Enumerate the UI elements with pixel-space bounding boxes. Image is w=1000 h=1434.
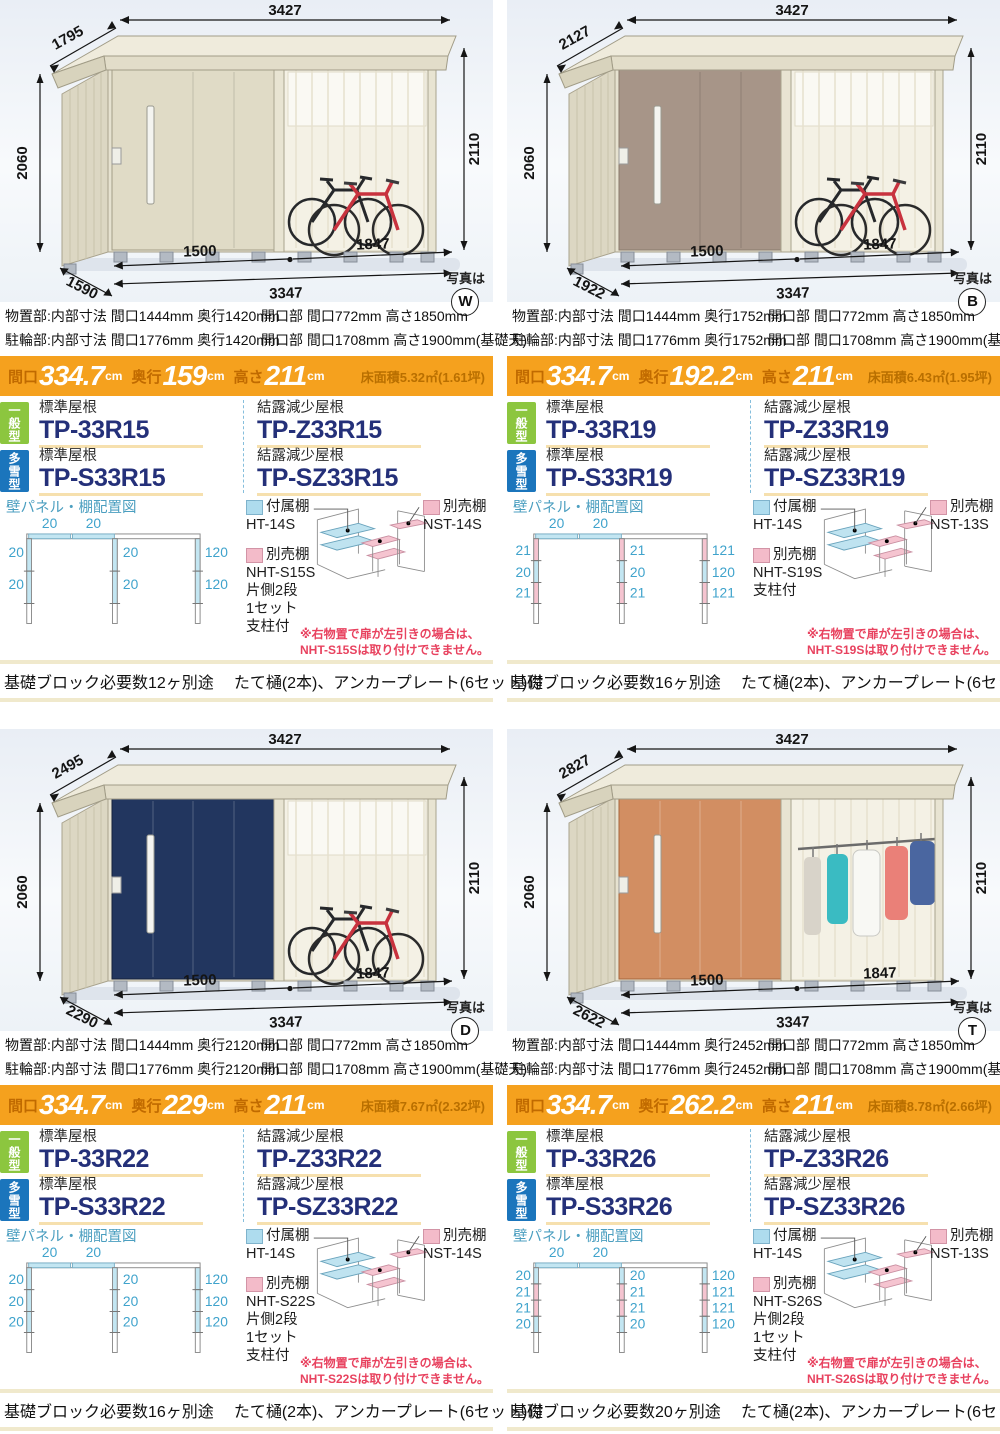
svg-text:120: 120 xyxy=(205,1315,228,1330)
dim-width: 3427 xyxy=(775,2,808,19)
shelf-legend-left: 付属棚 HT-14S 別売棚 NHT-S15S 片側2段 1セット 支柱付 xyxy=(246,498,316,636)
model-code: TP-S33R26 xyxy=(546,1194,710,1225)
dimension-banner: 間口334.7cm 奥行159cm 高さ211cm 床面積5.32㎡(1.61坪… xyxy=(0,356,493,396)
dim-height-right: 2110 xyxy=(973,133,990,166)
svg-text:121: 121 xyxy=(712,543,735,558)
svg-text:20: 20 xyxy=(549,516,565,531)
svg-text:20: 20 xyxy=(9,577,25,592)
svg-text:20: 20 xyxy=(516,1268,532,1283)
svg-text:20: 20 xyxy=(630,1317,646,1332)
optional-shelf-swatch-icon xyxy=(930,1229,947,1244)
included-shelf-swatch-icon xyxy=(753,500,770,515)
model-code: TP-S33R22 xyxy=(39,1194,203,1225)
shelf-layout-section: 壁パネル・棚配置図 20 20 20 20 20 20 xyxy=(0,496,493,658)
model-code: TP-33R22 xyxy=(39,1146,203,1177)
dim-height-right: 2110 xyxy=(973,862,990,895)
dim-height-right: 2110 xyxy=(466,862,483,895)
dim-depth-bottom: 1922 xyxy=(570,273,607,302)
svg-text:20: 20 xyxy=(9,545,25,560)
dim-width: 3427 xyxy=(268,731,301,748)
dim-width: 3427 xyxy=(775,731,808,748)
general-type-badge: 一般型 xyxy=(507,1131,536,1173)
floor-area: 床面積8.78㎡(2.66坪) xyxy=(868,1096,992,1115)
dim-door-width: 1500 xyxy=(690,971,724,989)
general-type-badge: 一般型 xyxy=(0,1131,29,1173)
dim-door-width: 1500 xyxy=(690,242,724,260)
floor-area: 床面積6.43㎡(1.95坪) xyxy=(868,367,992,386)
optional-shelf-swatch-icon xyxy=(246,1277,263,1292)
dim-width: 3427 xyxy=(268,2,301,19)
product-panel-tp33r15: 3427 1795 2060 2110 1500 1847 3347 1590 … xyxy=(0,0,493,705)
optional-shelf-model: NHT-S26S xyxy=(753,1293,823,1311)
dim-bay-width: 1847 xyxy=(356,235,390,253)
optional-shelf-model: NHT-S22S xyxy=(246,1293,316,1311)
model-numbers: 一般型 標準屋根TP-33R26 結露減少屋根TP-Z33R26 多雪型 標準屋… xyxy=(507,1129,1000,1225)
optional-shelf-swatch-icon xyxy=(423,1229,440,1244)
svg-text:121: 121 xyxy=(712,586,735,601)
dimension-banner: 間口334.7cm 奥行262.2cm 高さ211cm 床面積8.78㎡(2.6… xyxy=(507,1085,1000,1125)
installation-warning: ※右物置で扉が左引きの場合は、 NHT-S26Sは取り付けできません。 xyxy=(807,1355,999,1387)
product-panel-tp33r22: 3427 2495 2060 2110 1500 1847 3347 2290 … xyxy=(0,729,493,1434)
catalog-page: 3427 1795 2060 2110 1500 1847 3347 1590 … xyxy=(0,0,1000,1434)
svg-text:20: 20 xyxy=(86,1245,102,1260)
svg-text:20: 20 xyxy=(630,1268,646,1283)
spec-text: 物置部:内部寸法 間口1444mm 奥行2452mm開口部 間口772mm 高さ… xyxy=(512,1033,998,1081)
model-numbers: 一般型 標準屋根TP-33R15 結露減少屋根TP-Z33R15 多雪型 標準屋… xyxy=(0,400,493,496)
svg-text:20: 20 xyxy=(123,1294,139,1309)
model-code: TP-Z33R15 xyxy=(257,417,421,448)
shed-drawing: 3427 2127 2060 2110 1500 1847 3347 1922 xyxy=(507,0,1000,302)
shelf-legend-right: 別売棚 NST-13S xyxy=(930,1227,999,1263)
foundation-note: 基礎ブロック必要数12ヶ別途 たて樋(2本)、アンカープレート(6セット)付 xyxy=(0,660,493,702)
model-code: TP-SZ33R15 xyxy=(257,465,421,496)
svg-text:120: 120 xyxy=(712,565,735,580)
optional-right-shelf-model: NST-13S xyxy=(930,516,999,534)
wall-panel-diagram: 20 20 20 20 20 20 20 20 120 120 120 xyxy=(2,1242,242,1362)
floor-area: 床面積5.32㎡(1.61坪) xyxy=(361,367,485,386)
shed-illustration-area: 3427 2127 2060 2110 1500 1847 3347 1922 … xyxy=(507,0,1000,302)
optional-right-shelf-model: NST-14S xyxy=(423,516,492,534)
svg-text:20: 20 xyxy=(9,1272,25,1287)
model-code: TP-Z33R19 xyxy=(764,417,928,448)
shed-drawing: 3427 2827 2060 2110 1500 1847 3347 2622 xyxy=(507,729,1000,1031)
included-shelf-swatch-icon xyxy=(753,1229,770,1244)
svg-text:21: 21 xyxy=(630,1300,645,1315)
shed-illustration-area: 3427 2495 2060 2110 1500 1847 3347 2290 … xyxy=(0,729,493,1031)
dim-height-left: 2060 xyxy=(521,875,538,908)
svg-text:20: 20 xyxy=(630,565,646,580)
dim-bay-width: 1847 xyxy=(863,964,897,982)
dim-depth-bottom: 2290 xyxy=(63,1002,100,1031)
shelf-legend-right: 別売棚 NST-14S xyxy=(423,498,492,534)
svg-text:121: 121 xyxy=(712,1300,735,1315)
svg-text:20: 20 xyxy=(9,1294,25,1309)
foundation-note: 基礎ブロック必要数16ヶ別途 たて樋(2本)、アンカープレート(6セット)付 xyxy=(507,660,1000,702)
optional-shelf-swatch-icon xyxy=(753,548,770,563)
model-code: TP-SZ33R22 xyxy=(257,1194,421,1225)
dim-height-left: 2060 xyxy=(521,146,538,179)
included-shelf-swatch-icon xyxy=(246,1229,263,1244)
svg-text:20: 20 xyxy=(9,1315,25,1330)
dim-depth-bottom: 1590 xyxy=(63,273,100,302)
svg-text:20: 20 xyxy=(549,1245,565,1260)
general-type-badge: 一般型 xyxy=(0,402,29,444)
model-numbers: 一般型 標準屋根TP-33R22 結露減少屋根TP-Z33R22 多雪型 標準屋… xyxy=(0,1129,493,1225)
optional-shelf-model: NHT-S19S xyxy=(753,564,823,582)
snow-type-badge: 多雪型 xyxy=(0,1179,29,1221)
svg-text:20: 20 xyxy=(516,565,532,580)
shelf-arrangement-sketch xyxy=(312,1229,428,1331)
shelf-arrangement-sketch xyxy=(819,1229,935,1331)
general-type-badge: 一般型 xyxy=(507,402,536,444)
svg-text:21: 21 xyxy=(516,543,531,558)
dim-height-right: 2110 xyxy=(466,133,483,166)
foundation-note: 基礎ブロック必要数20ヶ別途 たて樋(2本)、アンカープレート(6セット)付 xyxy=(507,1389,1000,1431)
optional-shelf-swatch-icon xyxy=(753,1277,770,1292)
svg-text:120: 120 xyxy=(205,1272,228,1287)
installation-warning: ※右物置で扉が左引きの場合は、 NHT-S19Sは取り付けできません。 xyxy=(807,626,999,658)
installation-warning: ※右物置で扉が左引きの場合は、 NHT-S22Sは取り付けできません。 xyxy=(300,1355,492,1387)
included-shelf-swatch-icon xyxy=(246,500,263,515)
model-code: TP-33R26 xyxy=(546,1146,710,1177)
shed-illustration-area: 3427 2827 2060 2110 1500 1847 3347 2622 … xyxy=(507,729,1000,1031)
dim-bay-width: 1847 xyxy=(863,235,897,253)
svg-text:120: 120 xyxy=(205,545,228,560)
svg-text:21: 21 xyxy=(630,543,645,558)
svg-text:20: 20 xyxy=(123,577,139,592)
dim-depth-top: 2495 xyxy=(49,752,86,783)
product-panel-tp33r19: 3427 2127 2060 2110 1500 1847 3347 1922 … xyxy=(507,0,1000,705)
svg-text:20: 20 xyxy=(123,1315,139,1330)
model-code: TP-SZ33R26 xyxy=(764,1194,928,1225)
model-code: TP-Z33R22 xyxy=(257,1146,421,1177)
dim-height-left: 2060 xyxy=(14,875,31,908)
included-shelf-model: HT-14S xyxy=(753,1245,823,1263)
bike-spec: 駐輪部:内部寸法 間口1776mm 奥行1420mm xyxy=(5,328,261,352)
shelf-legend-left: 付属棚 HT-14S 別売棚 NHT-S19S 支柱付 xyxy=(753,498,823,600)
snow-type-badge: 多雪型 xyxy=(507,450,536,492)
shelf-legend-left: 付属棚 HT-14S 別売棚 NHT-S26S 片側2段 1セット 支柱付 xyxy=(753,1227,823,1365)
svg-text:21: 21 xyxy=(630,586,645,601)
shed-drawing: 3427 1795 2060 2110 1500 1847 3347 1590 xyxy=(0,0,493,302)
svg-text:120: 120 xyxy=(712,1317,735,1332)
dim-total-width: 3347 xyxy=(269,284,303,302)
svg-text:121: 121 xyxy=(712,1284,735,1299)
shelf-legend-right: 別売棚 NST-13S xyxy=(930,498,999,534)
included-shelf-model: HT-14S xyxy=(246,1245,316,1263)
optional-right-shelf-model: NST-14S xyxy=(423,1245,492,1263)
model-code: TP-33R19 xyxy=(546,417,710,448)
model-code: TP-S33R19 xyxy=(546,465,710,496)
svg-text:120: 120 xyxy=(712,1268,735,1283)
snow-type-badge: 多雪型 xyxy=(0,450,29,492)
wall-panel-diagram: 20 20 20 21 21 20 20 21 21 20 120 121 12… xyxy=(509,1242,749,1362)
foundation-note: 基礎ブロック必要数16ヶ別途 たて樋(2本)、アンカープレート(6セット)付 xyxy=(0,1389,493,1431)
svg-text:120: 120 xyxy=(205,1294,228,1309)
svg-text:20: 20 xyxy=(516,1317,532,1332)
dimension-banner: 間口334.7cm 奥行229cm 高さ211cm 床面積7.67㎡(2.32坪… xyxy=(0,1085,493,1125)
svg-text:20: 20 xyxy=(123,1272,139,1287)
dim-total-width: 3347 xyxy=(776,284,810,302)
installation-warning: ※右物置で扉が左引きの場合は、 NHT-S15Sは取り付けできません。 xyxy=(300,626,492,658)
dim-depth-top: 2127 xyxy=(556,23,593,54)
model-code: TP-SZ33R19 xyxy=(764,465,928,496)
spec-text: 物置部:内部寸法 間口1444mm 奥行1420mm開口部 間口772mm 高さ… xyxy=(5,304,491,352)
dim-total-width: 3347 xyxy=(776,1013,810,1031)
svg-text:21: 21 xyxy=(516,1300,531,1315)
dimension-banner: 間口334.7cm 奥行192.2cm 高さ211cm 床面積6.43㎡(1.9… xyxy=(507,356,1000,396)
shelf-arrangement-sketch xyxy=(312,500,428,602)
optional-shelf-swatch-icon xyxy=(246,548,263,563)
dim-depth-top: 2827 xyxy=(556,752,593,783)
included-shelf-model: HT-14S xyxy=(246,516,316,534)
dim-door-width: 1500 xyxy=(183,971,217,989)
dim-total-width: 3347 xyxy=(269,1013,303,1031)
model-numbers: 一般型 標準屋根TP-33R19 結露減少屋根TP-Z33R19 多雪型 標準屋… xyxy=(507,400,1000,496)
svg-text:21: 21 xyxy=(630,1284,645,1299)
svg-text:20: 20 xyxy=(86,516,102,531)
shelf-legend-left: 付属棚 HT-14S 別売棚 NHT-S22S 片側2段 1セット 支柱付 xyxy=(246,1227,316,1365)
spec-text: 物置部:内部寸法 間口1444mm 奥行1752mm開口部 間口772mm 高さ… xyxy=(512,304,998,352)
wall-panel-diagram: 20 20 21 20 21 21 20 21 121 120 121 xyxy=(509,513,749,633)
model-code: TP-Z33R26 xyxy=(764,1146,928,1177)
svg-text:21: 21 xyxy=(516,586,531,601)
shelf-arrangement-sketch xyxy=(819,500,935,602)
svg-text:20: 20 xyxy=(42,1245,58,1260)
product-panel-tp33r26: 3427 2827 2060 2110 1500 1847 3347 2622 … xyxy=(507,729,1000,1434)
svg-text:120: 120 xyxy=(205,577,228,592)
svg-text:20: 20 xyxy=(42,516,58,531)
snow-type-badge: 多雪型 xyxy=(507,1179,536,1221)
optional-shelf-model: NHT-S15S xyxy=(246,564,316,582)
included-shelf-model: HT-14S xyxy=(753,516,823,534)
dim-door-width: 1500 xyxy=(183,242,217,260)
shed-illustration-area: 3427 1795 2060 2110 1500 1847 3347 1590 … xyxy=(0,0,493,302)
dim-height-left: 2060 xyxy=(14,146,31,179)
svg-text:21: 21 xyxy=(516,1284,531,1299)
shelf-layout-section: 壁パネル・棚配置図 20 20 20 xyxy=(0,1225,493,1387)
model-code: TP-33R15 xyxy=(39,417,203,448)
floor-area: 床面積7.67㎡(2.32坪) xyxy=(361,1096,485,1115)
optional-shelf-swatch-icon xyxy=(423,500,440,515)
dim-bay-width: 1847 xyxy=(356,964,390,982)
shelf-legend-right: 別売棚 NST-14S xyxy=(423,1227,492,1263)
shelf-layout-section: 壁パネル・棚配置図 20 xyxy=(507,1225,1000,1387)
shed-drawing: 3427 2495 2060 2110 1500 1847 3347 2290 xyxy=(0,729,493,1031)
dim-depth-top: 1795 xyxy=(49,23,86,54)
optional-shelf-swatch-icon xyxy=(930,500,947,515)
spec-text: 物置部:内部寸法 間口1444mm 奥行2120mm開口部 間口772mm 高さ… xyxy=(5,1033,491,1081)
shelf-layout-section: 壁パネル・棚配置図 20 20 21 xyxy=(507,496,1000,658)
svg-text:20: 20 xyxy=(593,1245,609,1260)
model-code: TP-S33R15 xyxy=(39,465,203,496)
svg-text:20: 20 xyxy=(593,516,609,531)
optional-right-shelf-model: NST-13S xyxy=(930,1245,999,1263)
photo-caption: 写真は xyxy=(446,268,485,287)
svg-text:20: 20 xyxy=(123,545,139,560)
storage-spec: 物置部:内部寸法 間口1444mm 奥行1420mm xyxy=(5,304,261,328)
wall-panel-diagram: 20 20 20 20 20 20 120 120 xyxy=(2,513,242,633)
dim-depth-bottom: 2622 xyxy=(570,1002,607,1031)
